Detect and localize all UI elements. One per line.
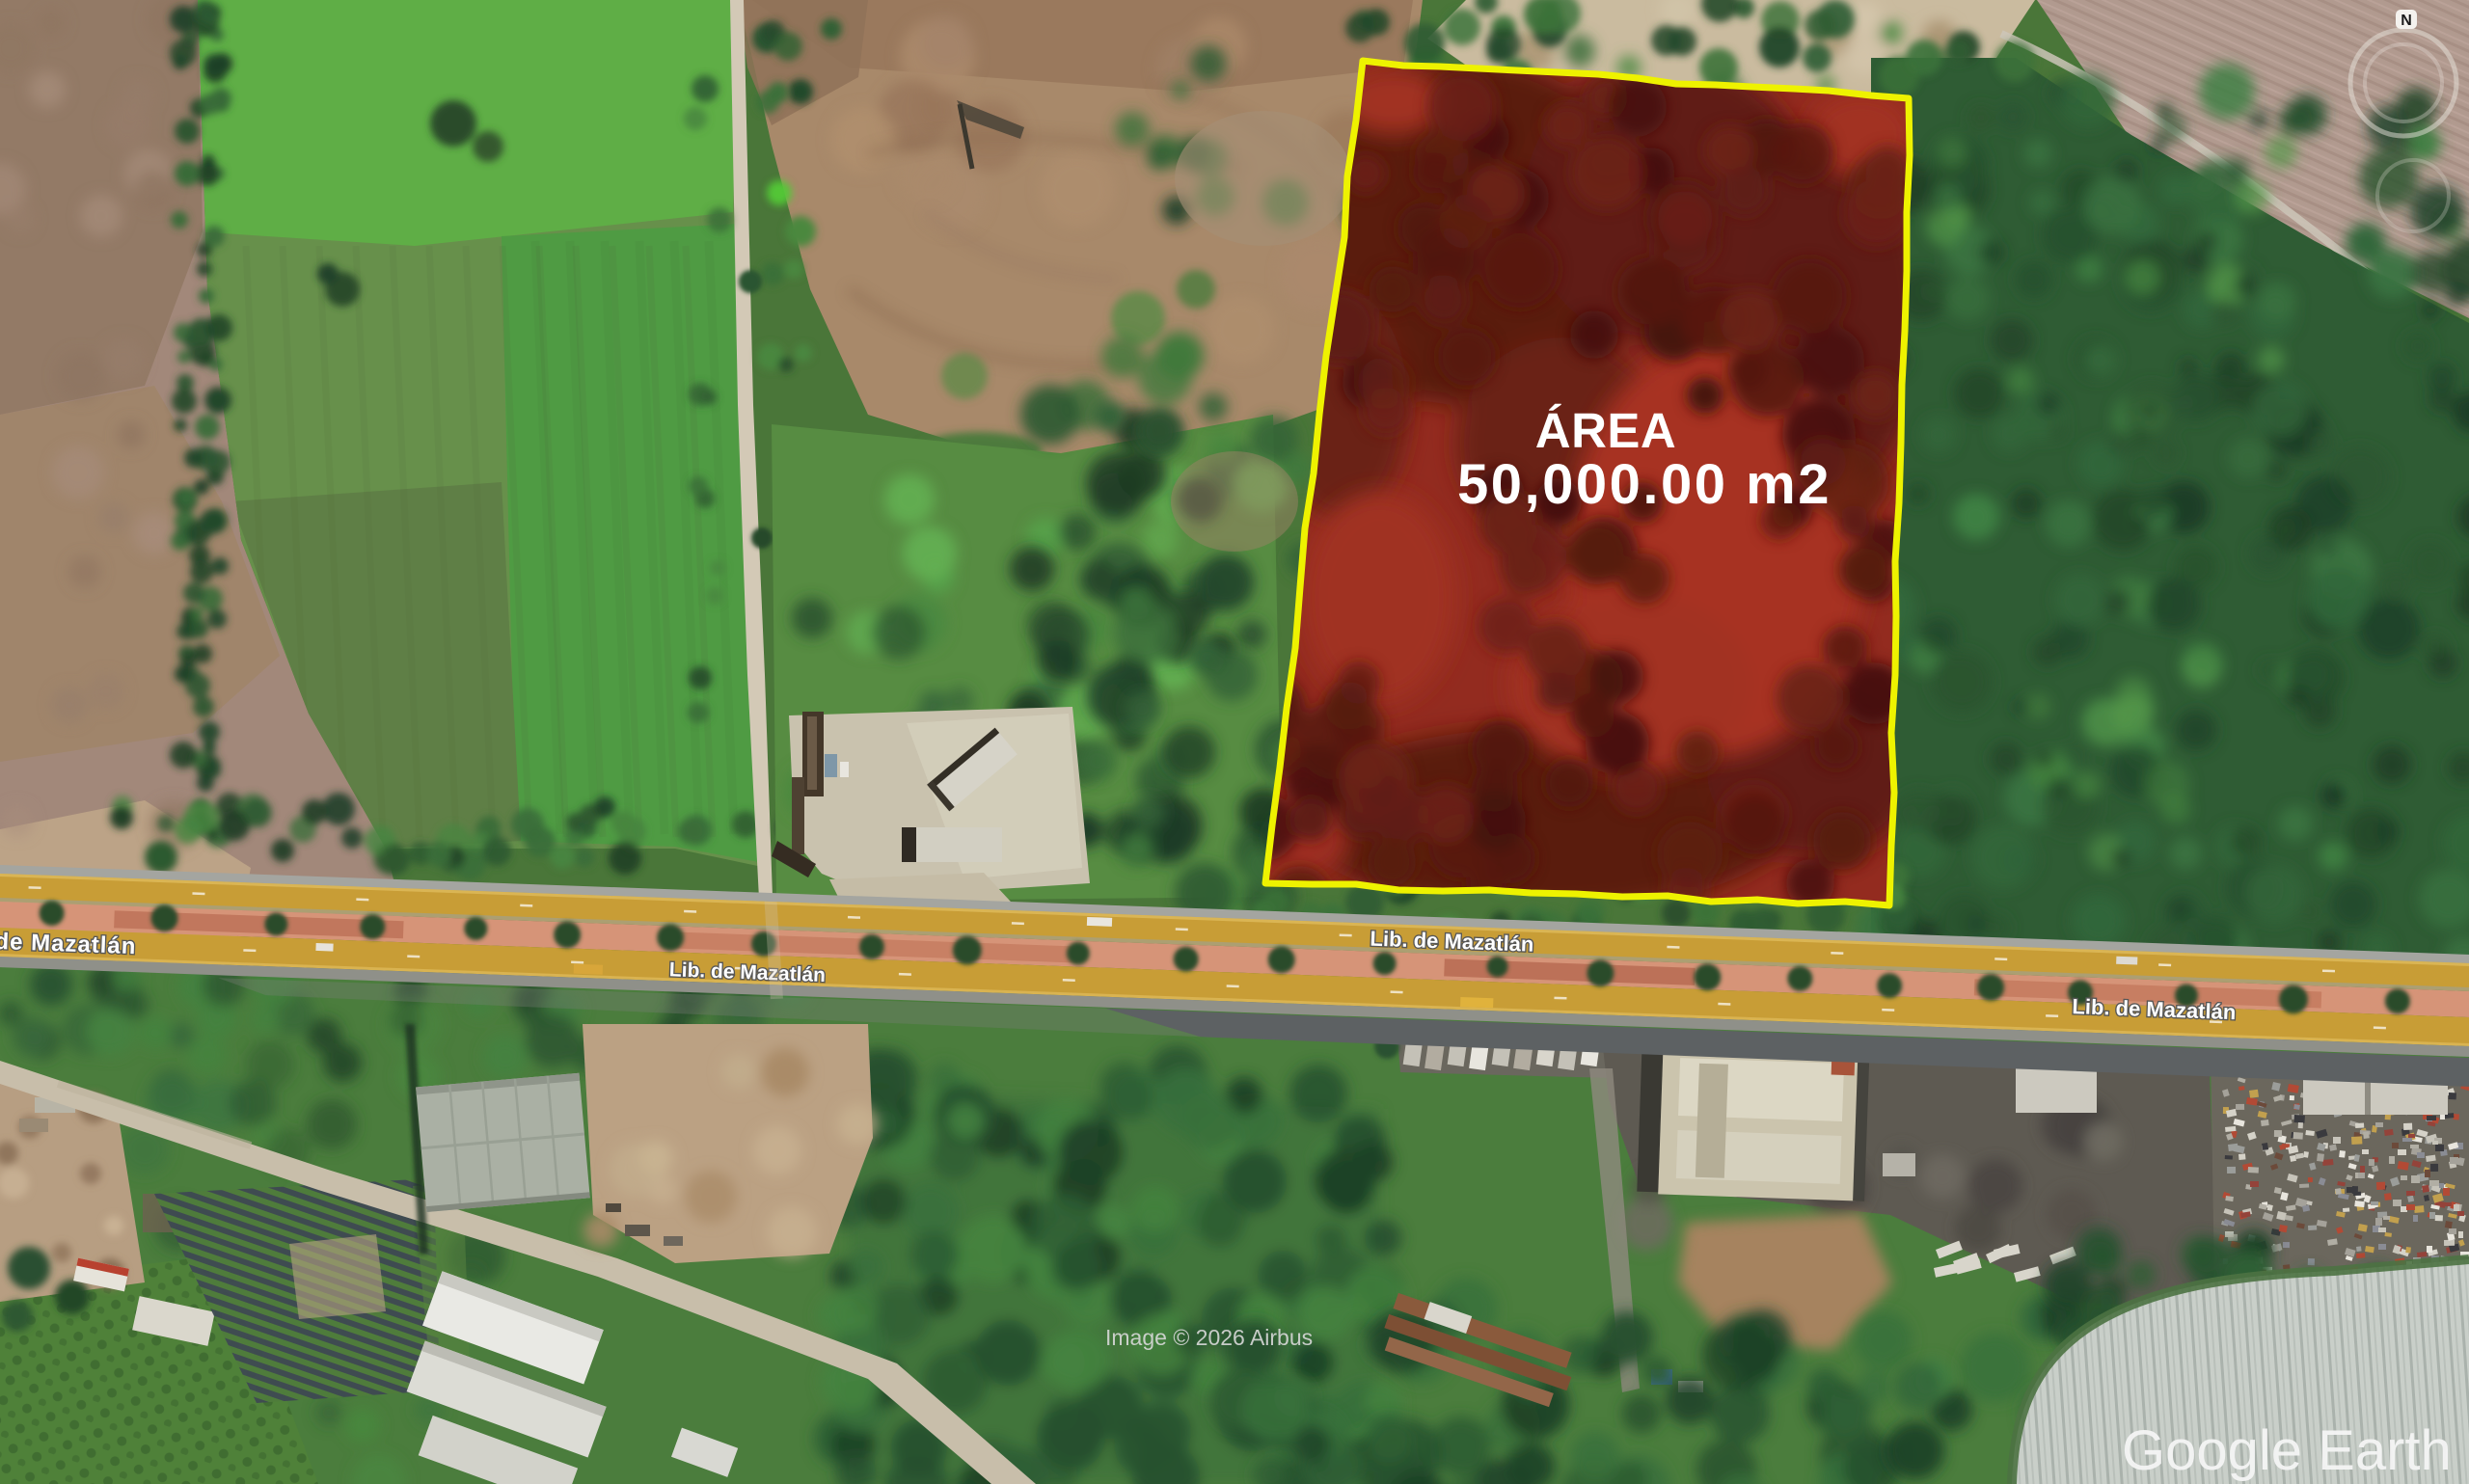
svg-text:b. de Mazatlán: b. de Mazatlán xyxy=(0,928,137,959)
svg-text:ÁREA: ÁREA xyxy=(1535,403,1677,458)
svg-text:Google Earth: Google Earth xyxy=(2122,1419,2452,1482)
svg-text:N: N xyxy=(2401,13,2412,29)
svg-text:50,000.00 m2: 50,000.00 m2 xyxy=(1457,453,1831,516)
svg-text:Image © 2026 Airbus: Image © 2026 Airbus xyxy=(1105,1325,1313,1350)
